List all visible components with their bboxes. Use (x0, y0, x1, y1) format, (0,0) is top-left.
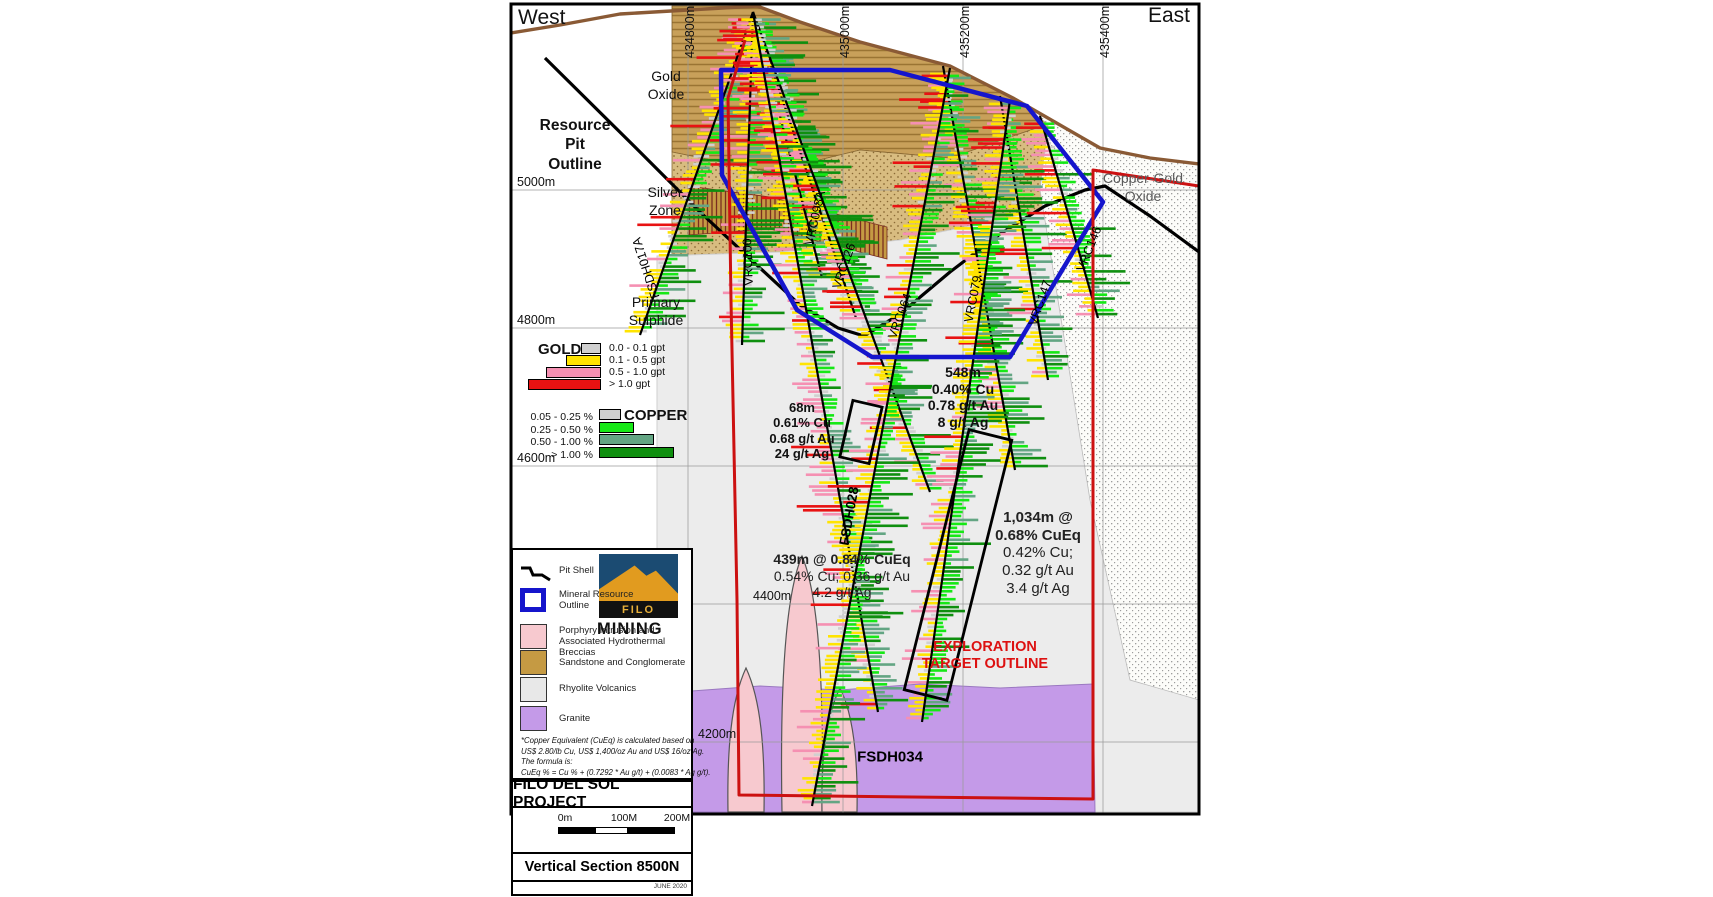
copper-legend-swatch (599, 422, 634, 433)
annotation-line: 3.4 g/t Ag (995, 580, 1081, 598)
map-legend-box: FILO MINING Pit ShellMineral Resource Ou… (511, 548, 693, 780)
drill-hole-label: VRC100 (740, 238, 756, 286)
gold-legend-label: > 1.0 gpt (609, 378, 650, 390)
compass-east-label: East (1148, 4, 1190, 28)
annotation-line: 8 g/t Ag (928, 414, 998, 431)
copper-legend-swatch (599, 434, 654, 445)
zone-label: Resource Pit Outline (540, 116, 611, 174)
legend-swatch (520, 624, 547, 649)
easting-label: 434800m (683, 6, 697, 58)
compass-west-label: West (518, 6, 565, 30)
legend-footnote-line: The formula is: (521, 757, 573, 766)
annotation-line: 68m (769, 400, 834, 415)
annotation-line: 4.2 g/t Ag (773, 584, 910, 601)
annotation-line: 0.68 g/t Au (769, 431, 834, 446)
labels-layer: West East GOLD COPPER 434800m435000m4352… (0, 0, 1713, 897)
legend-item-label: Pit Shell (559, 566, 691, 577)
copper-legend-label: 0.05 - 0.25 % (438, 411, 593, 423)
project-title: FILO DEL SOL PROJECT (513, 782, 691, 808)
legend-swatch (520, 677, 547, 702)
easting-label: 435400m (1098, 6, 1112, 58)
annotation-line: 24 g/t Ag (769, 446, 834, 461)
annotation-line: 0.78 g/t Au (928, 397, 998, 414)
drill-hole-label: FSDH034 (857, 749, 923, 766)
legend-swatch (520, 706, 547, 731)
scale-label: 200M (664, 812, 690, 824)
drill-hole-label: VRC126 (830, 241, 859, 290)
legend-item-label: Rhyolite Volcanics (559, 684, 691, 695)
scale-label: 100M (611, 812, 637, 824)
drill-hole-label: FSDH017A (630, 236, 663, 300)
annotation-line: 0.61% Cu (769, 415, 834, 430)
section-title: Vertical Section 8500N (513, 852, 691, 882)
interval-annotation: EXPLORATIONTARGET OUTLINE (922, 639, 1048, 673)
drill-hole-label: FSDH028 (836, 486, 861, 547)
zone-label: Gold Oxide (648, 68, 685, 103)
annotation-line: TARGET OUTLINE (922, 656, 1048, 673)
elevation-label: 4800m (517, 313, 555, 327)
interval-annotation: 439m @ 0.84% CuEq0.54% Cu; 0.36 g/t Au4.… (773, 551, 910, 601)
gold-legend-swatch (581, 343, 601, 354)
annotation-line: 0.40% Cu (928, 381, 998, 398)
scale-bar-segment (595, 827, 628, 834)
legend-item-label: Porphyry Intrusion and Associated Hydrot… (559, 626, 691, 659)
annotation-line: 1,034m @ (995, 509, 1081, 527)
gold-legend-label: 0.5 - 1.0 gpt (609, 366, 665, 378)
easting-label: 435200m (958, 6, 972, 58)
elevation-label: 4200m (698, 727, 736, 741)
elevation-label: 5000m (517, 175, 555, 189)
drill-hole-label: VRC147 (1026, 278, 1055, 327)
annotation-line: EXPLORATION (922, 639, 1048, 656)
legend-item-label: Mineral Resource Outline (559, 590, 691, 612)
gold-legend-label: 0.1 - 0.5 gpt (609, 354, 665, 366)
gold-legend-swatch (528, 379, 601, 390)
drill-hole-label: VRC079 (962, 274, 985, 323)
drill-hole-label: VRC146 (1074, 224, 1105, 273)
gold-legend-label: 0.0 - 0.1 gpt (609, 342, 665, 354)
gold-legend-swatch (546, 367, 601, 378)
annotation-line: 0.54% Cu; 0.36 g/t Au (773, 568, 910, 585)
interval-annotation: 548m0.40% Cu0.78 g/t Au8 g/t Ag (928, 364, 998, 430)
drill-hole-label: VRC098A (802, 189, 828, 246)
annotation-line: 548m (928, 364, 998, 381)
zone-label: Primary Sulphide (629, 294, 684, 329)
legend-footnote-line: US$ 2.80/lb Cu, US$ 1,400/oz Au and US$ … (521, 747, 704, 756)
annotation-line: 0.42% Cu; (995, 544, 1081, 562)
legend-item-label: Sandstone and Conglomerate (559, 658, 691, 669)
easting-label: 435000m (838, 6, 852, 58)
date-label: JUNE 2020 (654, 883, 687, 890)
annotation-line: 0.32 g/t Au (995, 562, 1081, 580)
legend-item-label: Granite (559, 714, 691, 725)
legend-footnote-line: *Copper Equivalent (CuEq) is calculated … (521, 736, 694, 745)
annotation-line: 439m @ 0.84% CuEq (773, 551, 910, 568)
copper-legend-label: 0.25 - 0.50 % (438, 424, 593, 436)
annotation-line: 0.68% CuEq (995, 527, 1081, 545)
resource-outline-symbol (520, 588, 546, 612)
cross-section-figure: West East GOLD COPPER 434800m435000m4352… (0, 0, 1713, 897)
zone-label: Silver Zone (647, 184, 682, 219)
drill-hole-label: VRC064 (885, 291, 914, 340)
gold-legend-swatch (566, 355, 601, 366)
scale-label: 0m (558, 812, 573, 824)
title-block: FILO DEL SOL PROJECT Vertical Section 85… (511, 780, 693, 896)
copper-legend-label: 0.50 - 1.00 % (438, 436, 593, 448)
legend-swatch (520, 650, 547, 675)
pit-shell-symbol (519, 562, 553, 584)
interval-annotation: 1,034m @0.68% CuEq0.42% Cu;0.32 g/t Au3.… (995, 509, 1081, 597)
scale-bar-segment (628, 827, 675, 834)
scale-bar-segment (558, 827, 595, 834)
copper-legend-label: > 1.00 % (438, 449, 593, 461)
copper-legend-swatch (599, 409, 621, 420)
copper-legend-swatch (599, 447, 674, 458)
zone-label: Copper-Gold Oxide (1103, 170, 1183, 205)
pit-shell-icon (519, 562, 553, 584)
interval-annotation: 68m0.61% Cu0.68 g/t Au24 g/t Ag (769, 400, 834, 461)
